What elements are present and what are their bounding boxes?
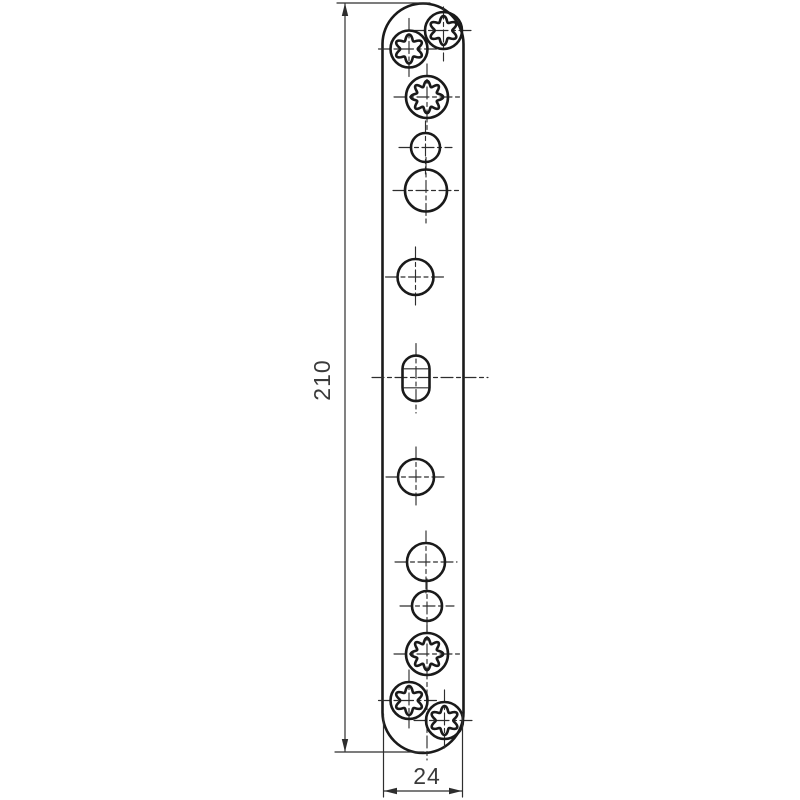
technical-drawing: 210 24 bbox=[0, 0, 800, 800]
plate-outline-layer bbox=[383, 4, 464, 754]
dimension-arrowhead bbox=[384, 788, 397, 794]
width-dimension-label: 24 bbox=[413, 763, 441, 789]
dimension-arrowhead bbox=[449, 788, 462, 794]
length-dimension-label: 210 bbox=[309, 359, 335, 400]
dimension-layer bbox=[335, 3, 463, 797]
dimension-arrowhead bbox=[342, 739, 348, 752]
dimension-arrowhead bbox=[342, 3, 348, 16]
plate-outline bbox=[383, 4, 464, 754]
